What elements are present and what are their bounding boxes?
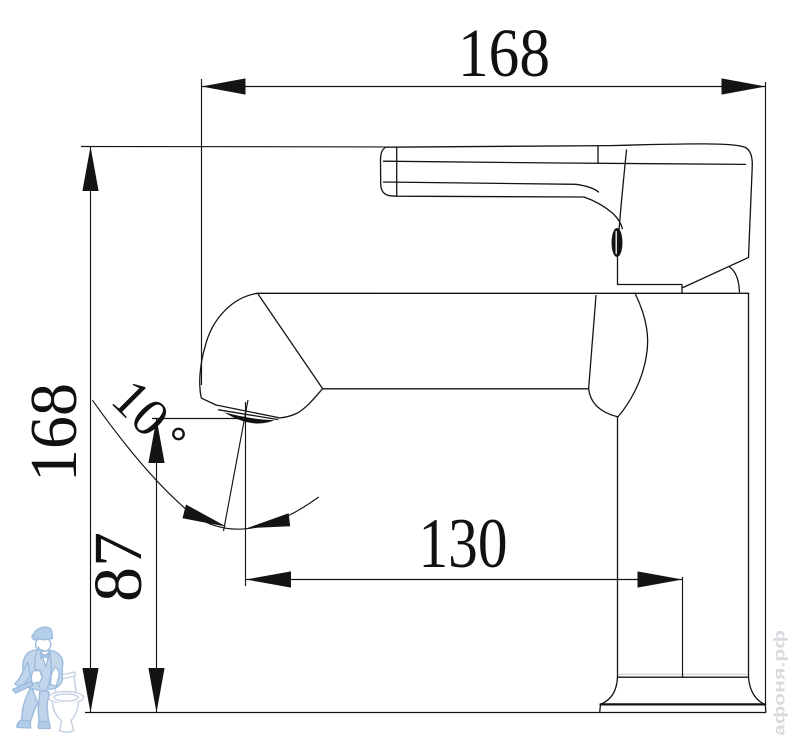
svg-text:168: 168: [17, 383, 91, 482]
svg-text:афоня.рф: афоня.рф: [772, 630, 789, 736]
svg-text:130: 130: [419, 505, 508, 583]
svg-text:87: 87: [80, 532, 156, 602]
svg-text:168: 168: [458, 15, 550, 91]
svg-text:10: 10: [101, 368, 182, 449]
